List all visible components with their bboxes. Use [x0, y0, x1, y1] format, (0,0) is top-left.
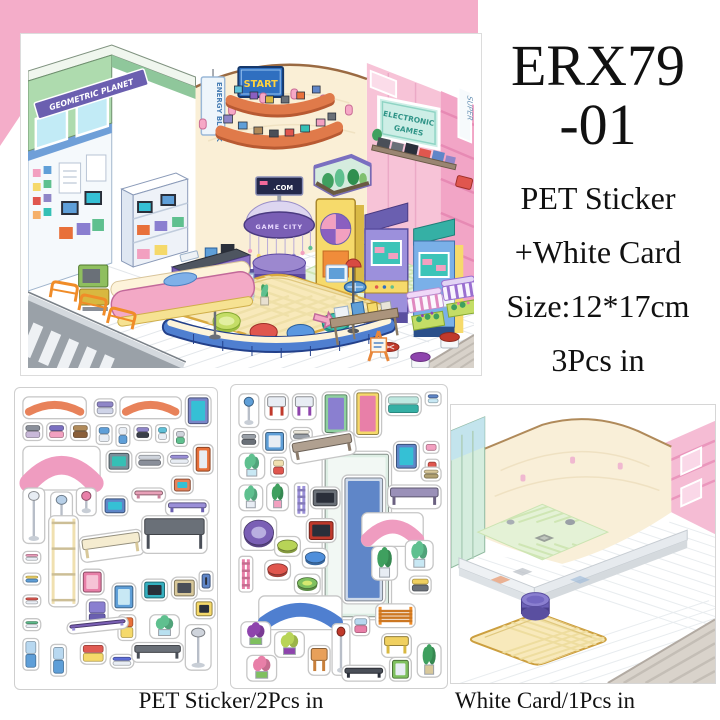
arcade-green-sticker — [322, 392, 350, 436]
pouf-lime-sticker — [294, 574, 320, 594]
mp3-player-sticker — [156, 425, 170, 443]
card-purple-pouf — [521, 593, 549, 621]
com-banner: .COM — [256, 177, 303, 195]
gray-table-sticker — [142, 516, 207, 554]
gamepad-sticker — [167, 452, 191, 466]
mini-fridge-green-sticker — [390, 657, 412, 681]
mushroom-lamp-sticker — [76, 488, 96, 516]
game-console-sticker — [106, 450, 132, 472]
product-desc-extra: +White Card — [487, 234, 709, 271]
stool-blue-sticker — [239, 394, 259, 428]
start-sign: START — [238, 67, 283, 97]
pink-counter-sticker — [23, 446, 100, 490]
stool-purple-sticker — [292, 394, 316, 420]
gadget-purple-sticker — [94, 399, 116, 417]
product-desc-size: Size:12*17cm — [487, 288, 709, 325]
product-desc-count: 3Pcs in — [487, 342, 709, 379]
charm-string-sticker — [294, 483, 308, 517]
basket-sticker — [421, 467, 441, 481]
aquarium-cube-sticker — [239, 453, 265, 479]
aquarium-small-sticker — [150, 615, 180, 639]
white-card-room — [451, 405, 715, 683]
product-code-line2: -01 — [487, 95, 709, 154]
svg-text:.COM: .COM — [273, 184, 293, 192]
pouf-red-sticker — [265, 560, 291, 580]
robot-toy-sticker — [47, 423, 67, 441]
product-desc-type: PET Sticker — [487, 180, 709, 217]
svg-text:GAME CITY: GAME CITY — [255, 223, 303, 231]
shelf-unit — [121, 173, 187, 267]
street-piece-sticker — [342, 665, 386, 681]
ladder-shelf-sticker — [49, 516, 79, 607]
tv-teal-sticker — [142, 579, 168, 601]
sticker-sheet-2-art — [231, 385, 447, 688]
sign-blue-sticker — [51, 644, 67, 676]
sticker-sheet-2 — [230, 384, 448, 689]
handheld-console-sticker — [96, 425, 112, 445]
plant-fern-sticker — [267, 483, 289, 511]
mini-fridge-pink-sticker — [80, 569, 104, 595]
tv-red-sticker — [306, 519, 336, 543]
room-illustration: ELECTRONIC GAMES SUPER — [28, 41, 474, 368]
media-shelf-sticker — [132, 642, 183, 662]
stool-red-cushion — [440, 333, 459, 349]
floor-lamp-sticker — [23, 488, 45, 543]
wall-shelf-pink-sticker — [132, 488, 166, 502]
console-beige-sticker — [171, 577, 197, 599]
keyboard-sticker — [136, 452, 164, 468]
aloe-plant-sticker — [417, 644, 441, 678]
plant-tall-sticker — [372, 546, 398, 580]
sticker-sheet-1-art — [15, 388, 217, 689]
white-card-panel — [450, 404, 716, 684]
camera-brown-sticker — [70, 423, 90, 441]
juice-box-sticker — [271, 457, 287, 477]
price-tag-sticker — [23, 573, 41, 585]
gamecity-sign-sticker — [241, 517, 277, 551]
pouf-blue-sticker — [302, 548, 328, 568]
tv-cart-sticker — [185, 395, 211, 427]
aquarium-plant-sticker — [405, 540, 433, 570]
tv-dark-sticker — [310, 487, 340, 509]
vending-unit-sticker — [193, 444, 213, 474]
price-tag-sticker — [23, 595, 41, 607]
headphones-sticker — [23, 423, 43, 441]
flower-crate-sticker — [247, 655, 277, 681]
pouf-lime — [213, 313, 240, 333]
charm-string-sticker — [239, 556, 253, 592]
tv-yellow-sticker — [193, 599, 215, 619]
gamepad-blue-sticker — [110, 654, 134, 668]
hand-sign-sticker — [352, 616, 370, 636]
arcade-yellow-sticker — [354, 390, 382, 438]
sticker-sheet-1 — [14, 387, 218, 690]
curved-shelf-sticker — [23, 397, 86, 419]
svg-text:SUPER: SUPER — [466, 94, 474, 123]
caption-sticker-sheets: PET Sticker/2Pcs in — [96, 688, 366, 714]
easel-sign-sticker — [308, 645, 330, 675]
plant-pot-sticker — [239, 485, 263, 511]
railing-orange-sticker — [376, 604, 416, 628]
tag-pink-sticker — [423, 441, 439, 453]
cart-yellow-sticker — [382, 634, 412, 658]
card-mint-cabinet — [451, 417, 485, 568]
arcade-controls-sticker — [80, 642, 106, 664]
flower-crate-sticker — [241, 622, 271, 648]
monitor-blue-sticker — [102, 496, 128, 516]
sign-blue-sticker — [23, 639, 39, 671]
curved-shelf-sticker — [120, 397, 181, 419]
bench-gray-sticker — [388, 485, 442, 509]
product-listing-image: ELECTRONIC GAMES SUPER — [0, 0, 720, 720]
tv-blue-small-sticker — [199, 571, 213, 591]
price-tag-sticker — [23, 619, 41, 631]
svg-text:START: START — [244, 79, 278, 90]
gameboy-sticker — [173, 429, 187, 447]
bench-cream-sticker — [78, 529, 144, 563]
camera-yellow-sticker — [409, 576, 431, 594]
monitor-orange-sticker — [171, 476, 193, 494]
camera-purple-sticker — [134, 425, 152, 441]
stool-purple-cushion — [411, 353, 430, 369]
super-sign: SUPER — [458, 87, 474, 144]
pouf-green-sticker — [275, 537, 301, 557]
purple-shelf-bar-sticker — [166, 500, 210, 516]
arcade-screen-blue-sticker — [393, 441, 419, 471]
curved-bench-blue-sticker — [259, 596, 342, 630]
games-sign-sticker — [386, 394, 422, 416]
flip-phone-sticker — [116, 425, 130, 447]
gadget-blue-sticker — [425, 392, 441, 406]
caption-white-card: White Card/1Pcs in — [420, 688, 670, 714]
cooler-blue-sticker — [112, 583, 136, 611]
room-illustration-panel: ELECTRONIC GAMES SUPER — [20, 33, 482, 376]
price-tag-sticker — [23, 551, 41, 563]
monitor-stand-sticker — [185, 625, 211, 671]
cooler-box-sticker — [263, 429, 287, 453]
product-info: ERX79 -01 PET Sticker +White Card Size:1… — [487, 36, 709, 379]
cap-gray-sticker — [239, 431, 259, 447]
flower-crate-sticker — [275, 632, 305, 658]
stool-red-sticker — [265, 394, 289, 420]
product-code-line1: ERX79 — [487, 36, 709, 95]
